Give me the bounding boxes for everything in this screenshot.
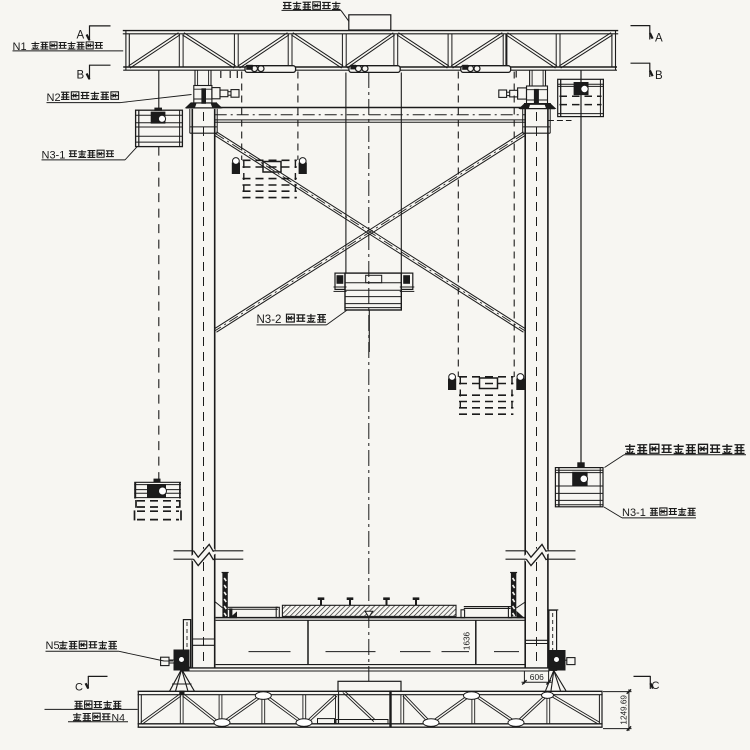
svg-text:A: A xyxy=(655,33,663,45)
svg-text:606: 606 xyxy=(530,672,544,682)
svg-text:1249.69: 1249.69 xyxy=(620,695,629,725)
svg-text:A: A xyxy=(77,30,85,42)
svg-text:B: B xyxy=(77,70,85,82)
svg-text:N5: N5 xyxy=(46,640,60,652)
svg-text:N3-2: N3-2 xyxy=(257,314,282,326)
svg-text:B: B xyxy=(655,70,663,82)
svg-text:1636: 1636 xyxy=(463,631,472,650)
svg-text:N3-1: N3-1 xyxy=(622,507,646,519)
svg-text:C: C xyxy=(75,682,83,694)
